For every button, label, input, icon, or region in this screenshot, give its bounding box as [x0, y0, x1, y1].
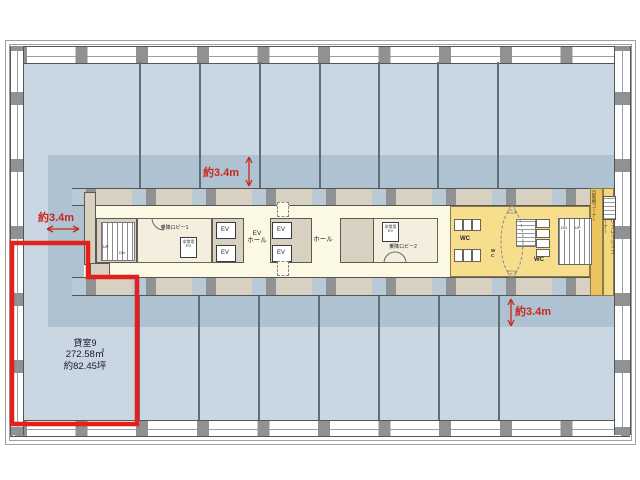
- ev-hall-door-top: [277, 202, 289, 217]
- exterior-wall-right: [614, 46, 631, 435]
- wc-mid-label: WC: [491, 249, 497, 258]
- wc-right-label: WC: [534, 257, 544, 263]
- emergency-elevator-2-label: 非常用 EV: [382, 225, 399, 233]
- wc-service-shaft: [516, 219, 536, 247]
- stair1-up-label: UP: [103, 245, 109, 249]
- wc-stall: [463, 219, 472, 231]
- hall-label: ホール: [306, 237, 340, 244]
- ev-lobby-2-label: 乗降ロビー2: [372, 245, 434, 250]
- vending-corner-label: 自販機コーナー: [591, 190, 597, 226]
- wc-stall: [536, 239, 550, 248]
- stairwell-1-steps: [101, 222, 135, 261]
- wc-stall: [454, 219, 463, 231]
- wc-stall: [472, 219, 481, 231]
- ev-hall-label: EV ホール: [243, 231, 271, 245]
- partition-line: [139, 62, 141, 190]
- elevator-1-label: EV: [221, 227, 229, 233]
- partition-line: [138, 296, 140, 420]
- partition-line: [198, 296, 200, 420]
- partition-line: [378, 296, 380, 420]
- wc-stall: [463, 249, 472, 262]
- room9-label: 貸室9 272.58㎡ 約82.45坪: [33, 339, 137, 372]
- elevator-3-label: EV: [277, 227, 285, 233]
- wc-stall: [472, 249, 481, 262]
- elevator-4-label: EV: [277, 250, 285, 256]
- core-cabinet-row-bottom: [72, 277, 604, 296]
- ev-lobby-1-label: 乗降ロビー1: [140, 226, 209, 231]
- ev-hall-line2: ホール: [247, 237, 267, 244]
- stair2-dn-label: DN: [561, 226, 567, 230]
- partition-line: [318, 296, 320, 420]
- dimension-bottom-label: 約3.4m: [515, 303, 551, 319]
- elevator-2-label: EV: [221, 250, 229, 256]
- partition-line: [438, 296, 440, 420]
- duct-shaft: [603, 196, 616, 220]
- partition-line: [498, 296, 500, 420]
- partition-line: [259, 62, 261, 190]
- partition-line: [437, 62, 439, 190]
- ev-hall-door-bottom: [277, 261, 289, 276]
- stair1-lower-wall: [90, 263, 110, 277]
- refresh-corner-label: リフレッシュコーナー: [602, 219, 616, 255]
- partition-line: [199, 62, 201, 190]
- em-ev2-line2: EV: [388, 228, 393, 233]
- stair1-dn-label: DN: [119, 251, 125, 255]
- emergency-elevator-1-label: 非常用 EV: [180, 240, 197, 248]
- room9-area-tsubo: 約82.45坪: [33, 362, 137, 372]
- partition-line: [319, 62, 321, 190]
- wc-left-label: WC: [460, 236, 470, 242]
- room9-area-sqm: 272.58㎡: [33, 350, 137, 360]
- partition-line: [497, 62, 499, 190]
- room9-name: 貸室9: [33, 339, 137, 348]
- partition-line: [258, 296, 260, 420]
- wc-stall: [454, 249, 463, 262]
- wc-stall: [536, 229, 550, 238]
- wc-stall: [536, 219, 550, 228]
- dimension-top-label: 約3.4m: [203, 164, 239, 180]
- stair2-up-label: UP: [575, 226, 581, 230]
- wc-stall: [536, 249, 550, 257]
- exterior-wall-bottom: [10, 420, 630, 437]
- floor-plan: UP DN 乗降ロビー1 非常用 EV EV EV EV ホール EV EV ホ…: [0, 0, 640, 480]
- em-ev1-line2: EV: [186, 243, 191, 248]
- partition-line: [378, 62, 380, 190]
- dimension-left-label: 約3.4m: [38, 209, 74, 225]
- core-end-wall-left: [84, 192, 96, 265]
- core-cabinet-row-top: [72, 188, 604, 206]
- exterior-wall-left: [10, 46, 24, 435]
- lobby2-machine-room: [340, 218, 374, 263]
